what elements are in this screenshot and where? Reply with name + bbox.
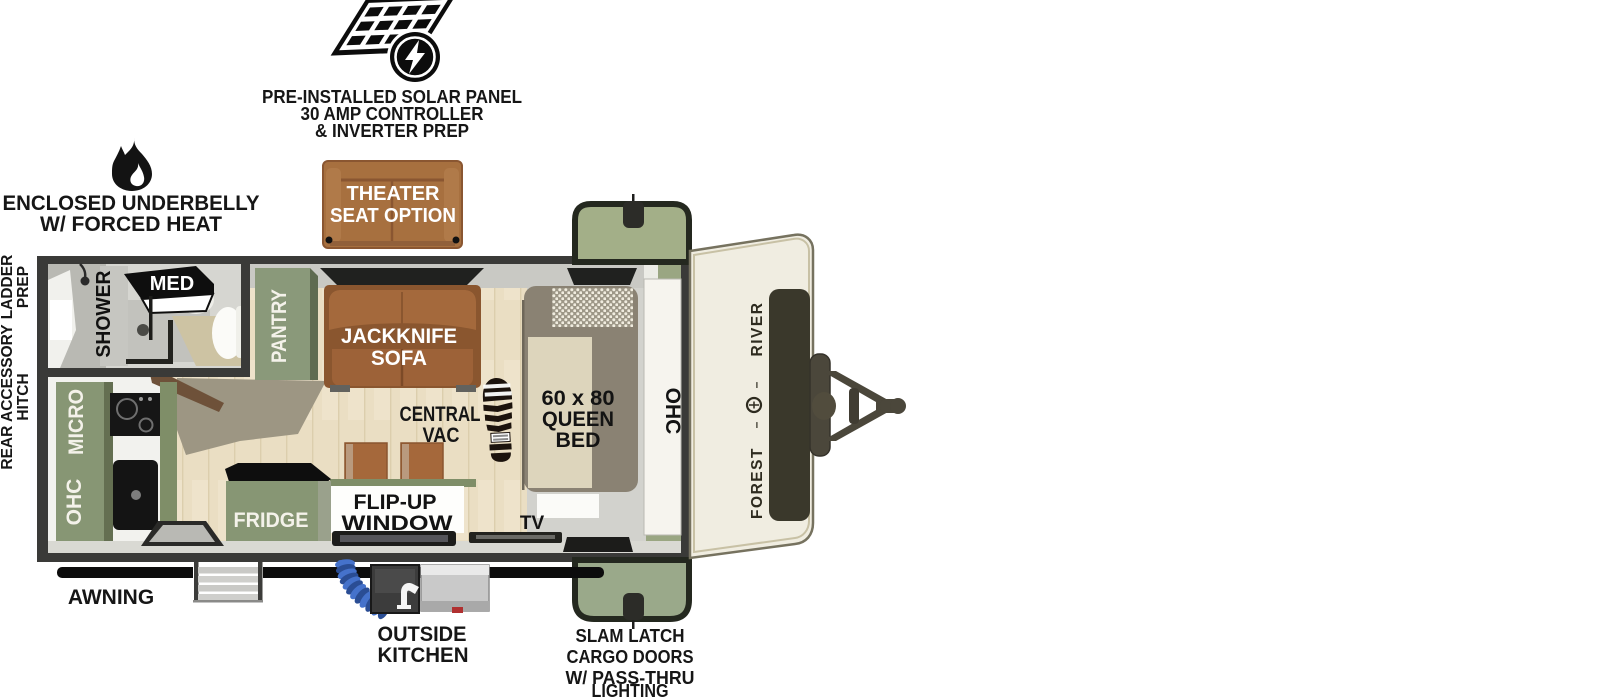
svg-text:CENTRAL: CENTRAL (400, 403, 481, 426)
svg-text:–: – (749, 381, 763, 388)
svg-text:BED: BED (556, 429, 601, 452)
svg-text:FLIP-UP: FLIP-UP (354, 491, 437, 514)
svg-text:60 x 80: 60 x 80 (542, 387, 615, 410)
svg-text:LADDERPREP: LADDERPREP (0, 255, 32, 320)
svg-text:MICRO: MICRO (65, 389, 88, 455)
svg-text:OUTSIDE: OUTSIDE (378, 623, 467, 646)
svg-text:AWNING: AWNING (68, 586, 154, 609)
svg-text:QUEEN: QUEEN (542, 408, 614, 431)
svg-text:TV: TV (520, 513, 545, 534)
svg-text:SHOWER: SHOWER (93, 270, 115, 358)
svg-text:REAR ACCESSORYHITCH: REAR ACCESSORYHITCH (0, 324, 32, 470)
svg-text:THEATER: THEATER (347, 183, 441, 205)
svg-text:RIVER: RIVER (749, 302, 766, 357)
svg-text:KITCHEN: KITCHEN (378, 644, 469, 667)
svg-text:SLAM LATCH: SLAM LATCH (576, 626, 685, 646)
svg-text:LIGHTING: LIGHTING (592, 681, 669, 697)
svg-text:SEAT OPTION: SEAT OPTION (330, 205, 456, 227)
svg-text:FRIDGE: FRIDGE (234, 509, 309, 532)
svg-text:SOFA: SOFA (371, 347, 427, 370)
svg-text:MED: MED (150, 273, 194, 295)
svg-text:& INVERTER PREP: & INVERTER PREP (315, 121, 469, 141)
svg-text:PANTRY: PANTRY (268, 289, 291, 363)
svg-text:W/ FORCED HEAT: W/ FORCED HEAT (40, 213, 222, 236)
svg-text:CARGO DOORS: CARGO DOORS (567, 647, 694, 667)
svg-text:OHC: OHC (661, 388, 684, 435)
svg-text:ENCLOSED UNDERBELLY: ENCLOSED UNDERBELLY (3, 192, 260, 215)
svg-text:JACKKNIFE: JACKKNIFE (341, 325, 457, 348)
svg-text:–: – (749, 421, 763, 428)
svg-text:OHC: OHC (63, 479, 86, 526)
svg-text:FOREST: FOREST (749, 447, 766, 519)
